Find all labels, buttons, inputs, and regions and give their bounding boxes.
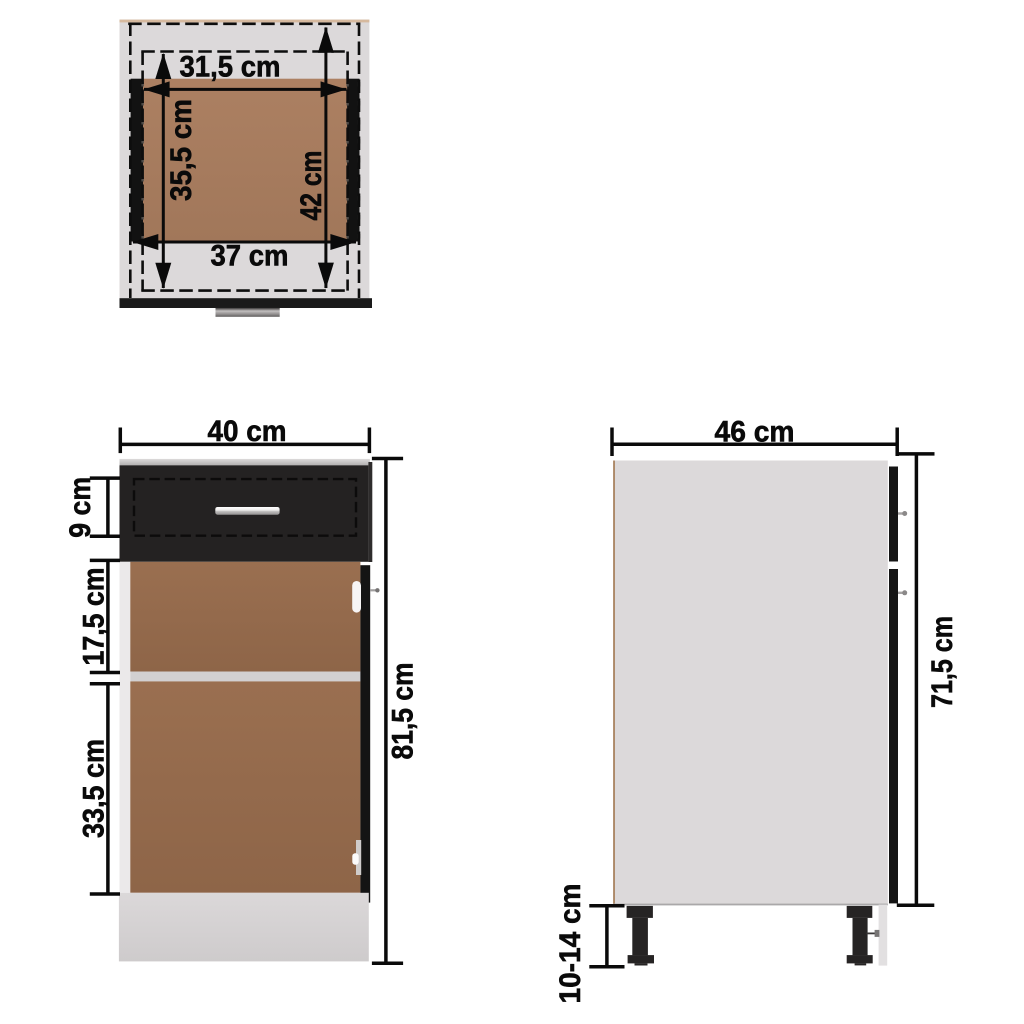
svg-text:40 cm: 40 cm [208,415,287,448]
svg-text:9 cm: 9 cm [64,477,97,538]
svg-text:33,5 cm: 33,5 cm [77,739,110,838]
svg-text:35,5 cm: 35,5 cm [165,99,198,201]
svg-text:42 cm: 42 cm [295,151,328,221]
svg-text:17,5 cm: 17,5 cm [77,568,110,666]
svg-text:81,5 cm: 81,5 cm [386,663,419,760]
svg-text:37 cm: 37 cm [211,239,289,272]
svg-text:31,5 cm: 31,5 cm [180,50,281,83]
svg-text:10-14 cm: 10-14 cm [554,884,587,1004]
svg-text:71,5 cm: 71,5 cm [926,616,959,708]
svg-text:46 cm: 46 cm [715,415,795,448]
